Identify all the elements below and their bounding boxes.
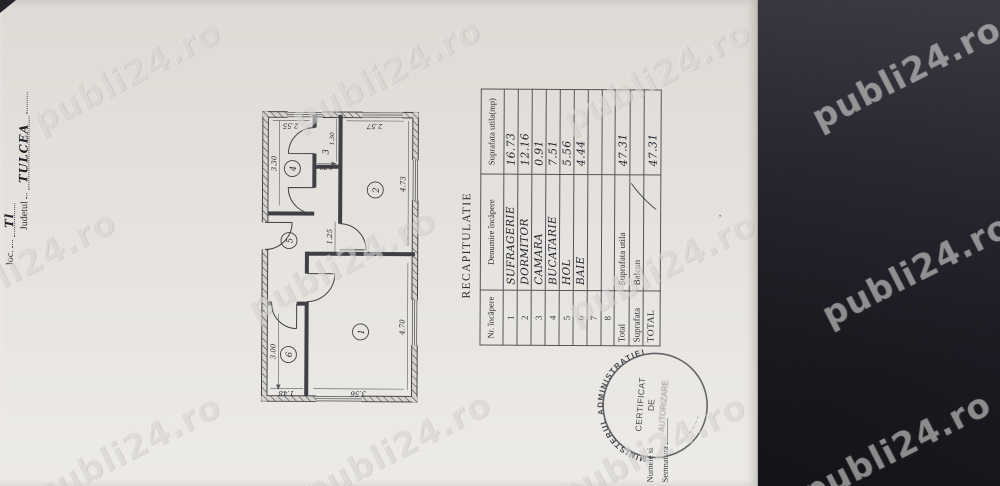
dim-room6-height: 1.48	[278, 389, 294, 397]
dim-room4-width: 3.30	[270, 155, 278, 171]
judet-value: TULCEA	[16, 123, 30, 183]
dotted-leader	[17, 92, 28, 114]
room-area: 16.73	[504, 133, 517, 166]
judet-label: Judetul	[19, 201, 30, 230]
room-name: BUCATARIE	[546, 216, 559, 285]
watermark-text: publi24.ro	[815, 205, 1000, 336]
document-paper: loc. Tl Judetul TULCEA	[0, 0, 758, 486]
table-row: 7	[587, 90, 602, 346]
room-name: SUFRAGERIE	[504, 206, 517, 285]
dim-room3-width: 1.30	[330, 132, 336, 145]
table-footer-row: TotalSuprafata utila47.31	[614, 90, 630, 346]
name-signature-block: Numele si Semnatura	[644, 418, 672, 483]
watermark-text: publi24.ro	[805, 8, 1000, 139]
room-area: 4.44	[574, 140, 587, 166]
watermark-text: publi24.ro	[795, 383, 1000, 486]
room-4-number: 4	[289, 166, 299, 172]
room-area: 12.16	[518, 133, 531, 166]
name-label: Numele si	[644, 418, 657, 483]
col-header-area: Suprafata utila(mp)	[481, 89, 504, 174]
floor-plan-drawing: 1 2 3 4 5 6 4.70 3.56 4.73 2.57 1.30 0.7…	[261, 111, 419, 402]
room-number-circles	[280, 160, 383, 363]
stamp-bottom-marks: – – – – – –	[679, 413, 703, 446]
col-header-nr: Nr. încăpere	[480, 290, 503, 345]
room-name: CAMARA	[532, 233, 545, 285]
dim-hall-width: 1.25	[326, 228, 334, 244]
photo-of-floorplan-document: loc. Tl Judetul TULCEA	[0, 0, 1000, 486]
room-2-number: 2	[372, 187, 382, 193]
table-row: 3CAMARA0.91	[531, 89, 546, 345]
room-name: DORMITOR	[518, 218, 531, 285]
table-row: 5HOL5.56	[559, 89, 574, 345]
form-location-line: loc. Tl	[2, 203, 16, 265]
room-1-number: 1	[357, 329, 367, 334]
svg-text:– – – – – –: – – – – – –	[679, 413, 703, 446]
footer-label: TOTAL	[643, 291, 660, 346]
room-area: 0.91	[532, 140, 545, 166]
dark-surface-sheen	[740, 0, 1000, 486]
loc-value: Tl	[2, 213, 16, 228]
room-area: 5.56	[560, 140, 573, 166]
floor-plan: 1 2 3 4 5 6 4.70 3.56 4.73 2.57 1.30 0.7…	[261, 111, 419, 402]
dim-room2-width: 4.73	[399, 176, 407, 193]
table-row: 1SUFRAGERIE16.73	[503, 89, 518, 345]
room-3-number: 3	[321, 149, 331, 154]
recap-title: RECAPITULATIE	[461, 192, 474, 298]
total-area-value: 47.31	[616, 133, 629, 166]
dotted-leader	[2, 240, 13, 248]
dim-room4-height: 2.55	[282, 121, 299, 129]
footer-label: Total	[614, 291, 629, 346]
dim-room2-height: 2.57	[366, 122, 383, 130]
dotted-leader	[16, 193, 27, 199]
loc-label: loc.	[5, 250, 16, 265]
signature-label: Semnatura	[660, 446, 670, 482]
dim-room3-height: 0.70	[320, 164, 333, 170]
pen-slash-mark	[628, 172, 663, 217]
dust-speck	[719, 215, 721, 217]
form-judet-line: Judetul TULCEA	[16, 92, 31, 230]
dotted-leader	[657, 418, 668, 444]
document-content: loc. Tl Judetul TULCEA	[0, 0, 758, 486]
dim-room1-height: 3.56	[350, 389, 366, 397]
table-row: 2DORMITOR12.16	[517, 89, 532, 345]
room-5-number: 5	[285, 238, 295, 243]
dim-room6-width: 3.00	[269, 343, 277, 359]
footer-label: Suprafata	[629, 291, 643, 346]
recap-table: Nr. încăpere Denumire încăpere Suprafata…	[479, 89, 661, 347]
room-name: HOL	[560, 259, 572, 285]
dim-room1-width: 4.70	[399, 319, 407, 336]
col-header-name: Denumire încăpere	[480, 174, 504, 290]
table-row: 4BUCATARIE7.51	[545, 89, 560, 345]
room-name: BAIE	[574, 256, 586, 285]
table-header-row: Nr. încăpere Denumire încăpere Suprafata…	[480, 89, 504, 345]
stamp-line-2: DE	[646, 399, 657, 412]
room-area: 7.51	[546, 140, 559, 166]
room-6-number: 6	[285, 351, 295, 357]
grand-total-value: 47.31	[646, 133, 659, 166]
table-footer-row: TOTAL47.31	[643, 90, 661, 346]
table-row: 6BAIE4.44	[573, 90, 588, 346]
table-row: 8	[600, 90, 615, 346]
table-footer-row: SuprafataBalcon	[629, 90, 644, 346]
